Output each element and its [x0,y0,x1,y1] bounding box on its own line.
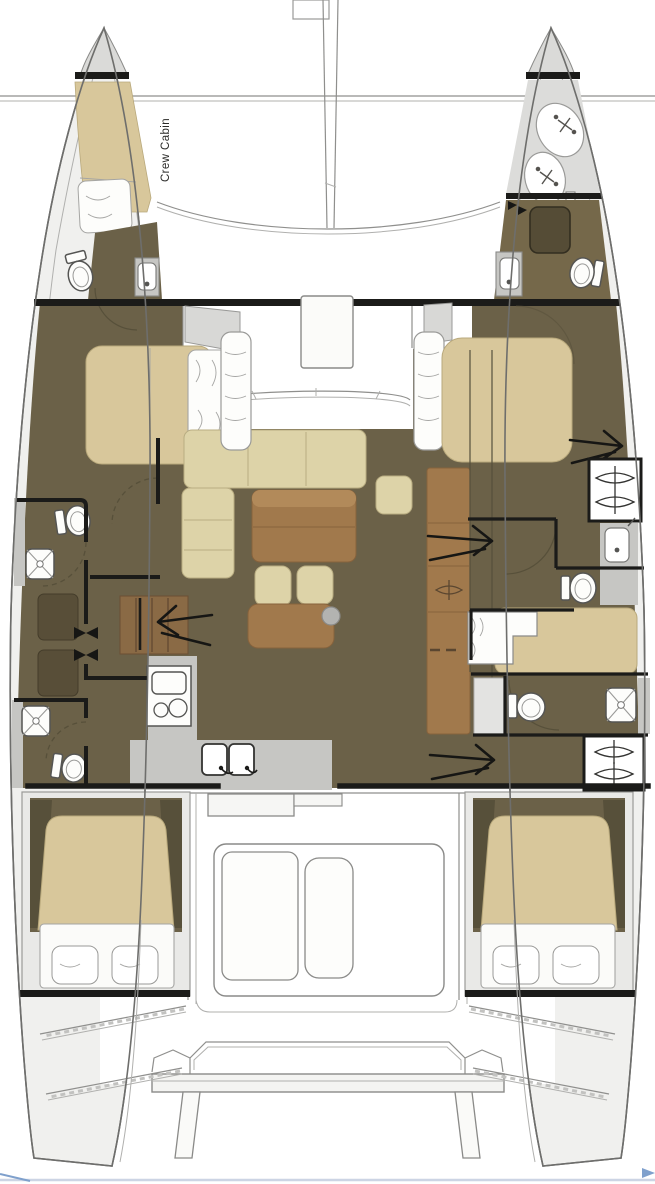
pillow [52,946,98,984]
aft-starboard-bulkhead [465,990,635,997]
cockpit-table [222,852,298,980]
sideboard [427,468,470,734]
cockpit-bench [305,858,353,978]
aft-starboard-bed [481,816,617,930]
locker [38,650,78,696]
cockpit-step [208,794,294,816]
salon-stool [255,566,291,606]
toilet-icon [561,573,596,603]
salon-sofa-return [182,488,234,578]
aft-starboard-cabin [465,792,635,997]
crinkle-seat [414,332,444,450]
table-pedestal [322,607,340,625]
double-sink-icon [202,744,257,775]
salon-stool [297,566,333,604]
locker-bulkhead [506,193,602,199]
aft-port-cabin [20,792,190,997]
starboard-fwd-head [494,200,611,300]
front-center-seat [301,296,353,368]
shower-mat [530,207,570,253]
pillow [112,946,158,984]
locker [38,594,78,640]
salon-ottoman [376,476,412,514]
hanging-locker [589,459,641,521]
stove-icon [147,666,191,726]
pillow [553,946,599,984]
crew-cabin-label: Crew Cabin [160,118,172,182]
crew-cabin-mattress [78,179,133,234]
port-stairs [120,596,188,654]
shower-icon [26,549,54,579]
bow-bulkhead [526,72,580,79]
shower-icon [606,688,636,722]
crinkle-seat [221,332,251,450]
catamaran-floor-plan: Crew Cabin [0,0,655,1184]
head-strip [474,678,504,734]
toilet-icon [508,693,545,721]
cockpit-step-small [294,794,342,806]
shower-icon [22,706,50,736]
hanging-locker [584,736,644,790]
aft-port-bed [38,816,174,930]
sink-icon [496,252,522,296]
salon-bench [248,604,334,648]
sink-icon [135,258,159,296]
aft-port-bulkhead [20,990,190,997]
bow-bulkhead [75,72,129,79]
salon-sofa [184,430,366,488]
